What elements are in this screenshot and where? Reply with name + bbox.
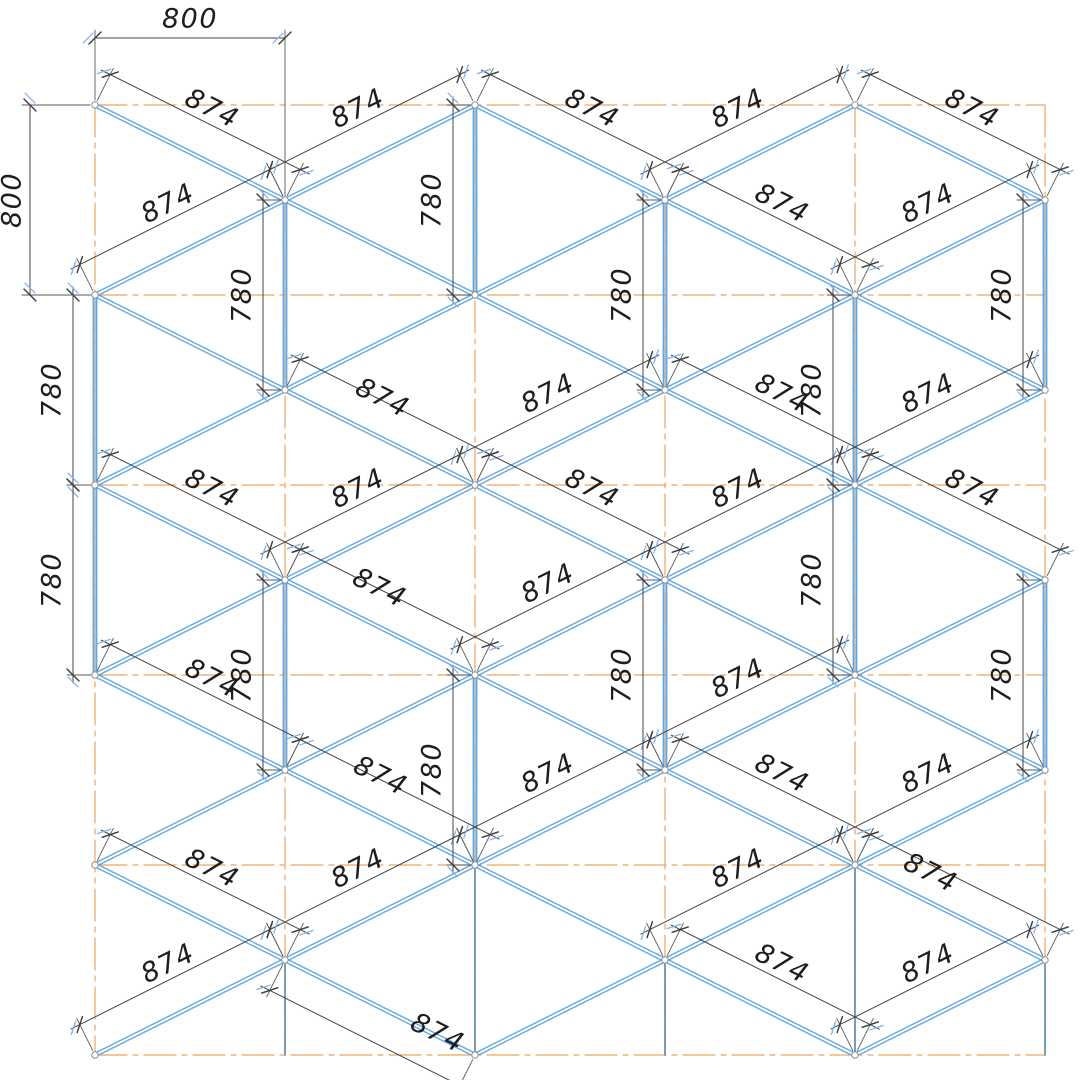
- dimension-label: 874: [706, 462, 770, 515]
- node-marker: [472, 862, 478, 868]
- dimension-label: 874: [750, 747, 814, 800]
- blue-tick: [680, 551, 693, 555]
- blue-tick: [490, 646, 503, 650]
- blue-tick: [287, 544, 300, 548]
- dimension-label: 780: [227, 647, 258, 703]
- dimension-label: 874: [706, 652, 770, 705]
- dimension-tick: [267, 542, 272, 558]
- dimension-label: 780: [417, 742, 448, 798]
- blue-tick: [464, 445, 468, 458]
- extension-line: [1047, 163, 1063, 195]
- node-marker: [92, 102, 98, 108]
- node-marker: [282, 957, 288, 963]
- dimension-label: 874: [560, 462, 624, 515]
- dimension-tick: [862, 452, 878, 457]
- dimension-label: 780: [227, 267, 258, 323]
- dimension-label: 874: [560, 82, 624, 135]
- dimension-tick: [1027, 352, 1032, 368]
- truss-chord: [284, 293, 474, 388]
- node-marker: [472, 1052, 478, 1058]
- dimension-label: 874: [326, 842, 390, 895]
- dimension-tick: [1027, 922, 1032, 938]
- node-marker: [472, 672, 478, 678]
- dimension-label: 874: [896, 937, 960, 990]
- dimension-label: 874: [750, 177, 814, 230]
- node-marker: [662, 387, 668, 393]
- truss-chord: [94, 958, 284, 1053]
- node-marker: [852, 1052, 858, 1058]
- dimension-label: 780: [607, 647, 638, 703]
- blue-tick: [857, 69, 870, 73]
- truss-chord: [474, 958, 664, 1053]
- truss-chord: [854, 958, 1044, 1053]
- dimension-tick: [837, 827, 842, 843]
- dimension-tick: [1052, 927, 1068, 932]
- truss-chord: [854, 768, 1044, 863]
- blue-tick: [870, 266, 883, 270]
- truss-chord: [286, 297, 476, 392]
- drawing-page: 8748748748748748748748748748748748748748…: [0, 0, 1080, 1080]
- node-marker: [662, 957, 668, 963]
- truss-chord: [96, 483, 286, 578]
- blue-tick: [97, 69, 110, 73]
- blue-tick: [831, 1021, 835, 1034]
- dimension-label: 874: [896, 177, 960, 230]
- blue-tick: [97, 449, 110, 453]
- dimension-tick: [102, 452, 118, 457]
- dimension-tick: [292, 737, 308, 742]
- dimension-tick: [837, 67, 842, 83]
- blue-tick: [654, 730, 658, 743]
- dimension-label: 874: [896, 367, 960, 420]
- blue-tick: [667, 354, 680, 358]
- blue-tick: [1060, 551, 1073, 555]
- dimension-tick: [837, 447, 842, 463]
- truss-chord: [856, 483, 1046, 578]
- dimension-label: 874: [326, 82, 390, 135]
- dimension-label: 780: [797, 362, 828, 418]
- blue-tick: [490, 836, 503, 840]
- extension-line: [457, 1059, 473, 1080]
- blue-tick: [870, 1026, 883, 1030]
- truss-chord: [94, 487, 284, 582]
- dimension-tick: [647, 162, 652, 178]
- dimension-tick: [837, 1017, 842, 1033]
- blue-tick: [857, 829, 870, 833]
- dimension-label: 874: [180, 82, 244, 135]
- truss-chord: [474, 768, 664, 863]
- dimension-label: 874: [347, 562, 411, 615]
- dimension-tick: [1027, 732, 1032, 748]
- truss-chord: [666, 198, 856, 293]
- dimension-label: 874: [940, 82, 1004, 135]
- blue-tick: [257, 985, 270, 989]
- truss-chord: [286, 867, 476, 962]
- blue-tick: [667, 164, 680, 168]
- blue-tick: [844, 825, 848, 838]
- node-marker: [472, 292, 478, 298]
- truss-chord: [666, 958, 856, 1053]
- dimension-tick: [292, 547, 308, 552]
- dimension-label: 874: [516, 367, 580, 420]
- node-marker: [282, 197, 288, 203]
- dimension-label: 780: [987, 647, 1018, 703]
- dimension-tick: [267, 162, 272, 178]
- dimension-tick: [482, 642, 498, 647]
- dimension-tick: [862, 262, 878, 267]
- dimension-tick: [837, 257, 842, 273]
- truss-chord: [856, 772, 1046, 867]
- dimension-tick: [647, 352, 652, 368]
- dimension-tick: [1027, 162, 1032, 178]
- blue-tick: [71, 261, 75, 274]
- node-marker: [92, 292, 98, 298]
- blue-tick: [857, 449, 870, 453]
- node-marker: [472, 482, 478, 488]
- node-marker: [92, 672, 98, 678]
- truss-chord: [666, 768, 856, 863]
- dimension-label: 874: [405, 1007, 469, 1060]
- truss-chord: [284, 483, 474, 578]
- dimension-label: 874: [350, 372, 414, 425]
- dimension-label: 800: [162, 4, 218, 35]
- blue-tick: [477, 69, 490, 73]
- blue-tick: [274, 160, 278, 173]
- extension-line: [1047, 923, 1063, 955]
- dimension-label: 874: [516, 747, 580, 800]
- node-marker: [852, 672, 858, 678]
- dimension-tick: [482, 452, 498, 457]
- node-marker: [662, 577, 668, 583]
- blue-tick: [1034, 160, 1038, 173]
- node-marker: [662, 767, 668, 773]
- node-marker: [1042, 767, 1048, 773]
- dimension-tick: [672, 927, 688, 932]
- dimension-label: 780: [607, 267, 638, 323]
- blue-tick: [300, 931, 313, 935]
- dimension-tick: [672, 737, 688, 742]
- dimension-label: 780: [797, 552, 828, 608]
- node-marker: [662, 197, 668, 203]
- dimension-tick: [457, 637, 462, 653]
- dimension-label: 874: [326, 462, 390, 515]
- dimension-label: 874: [896, 747, 960, 800]
- dimension-tick: [1052, 167, 1068, 172]
- dimension-label: 874: [348, 750, 412, 803]
- node-marker: [282, 387, 288, 393]
- dimension-tick: [457, 827, 462, 843]
- dimension-tick: [292, 167, 308, 172]
- dimension-label: 874: [750, 937, 814, 990]
- blue-tick: [71, 1021, 75, 1034]
- blue-tick: [451, 641, 455, 654]
- dimension-tick: [292, 357, 308, 362]
- truss-chord: [856, 103, 1046, 198]
- truss-chord: [664, 202, 854, 297]
- blue-tick: [287, 734, 300, 738]
- isometric-truss-drawing: 8748748748748748748748748748748748748748…: [0, 0, 1080, 1080]
- dimension-tick: [672, 167, 688, 172]
- node-marker: [1042, 197, 1048, 203]
- extension-line: [77, 1018, 93, 1050]
- truss-chord: [476, 962, 666, 1057]
- dimension-tick: [457, 447, 462, 463]
- node-marker: [852, 482, 858, 488]
- dimension-tick: [647, 922, 652, 938]
- blue-tick: [287, 354, 300, 358]
- node-marker: [1042, 387, 1048, 393]
- blue-tick: [831, 261, 835, 274]
- extension-line: [1047, 543, 1063, 575]
- truss-chord: [856, 962, 1046, 1057]
- truss-chord: [854, 487, 1044, 582]
- truss-chord: [474, 107, 664, 202]
- truss-chord: [476, 483, 666, 578]
- blue-tick: [464, 825, 468, 838]
- dimension-tick: [457, 67, 462, 83]
- truss-chord: [96, 863, 286, 958]
- node-marker: [92, 862, 98, 868]
- blue-tick: [1034, 350, 1038, 363]
- blue-tick: [300, 171, 313, 175]
- blue-tick: [844, 445, 848, 458]
- blue-tick: [477, 449, 490, 453]
- node-marker: [1042, 957, 1048, 963]
- dimension-tick: [102, 832, 118, 837]
- blue-tick: [97, 639, 110, 643]
- blue-tick: [464, 65, 468, 78]
- node-marker: [1042, 577, 1048, 583]
- blue-tick: [844, 635, 848, 648]
- dimension-label: 874: [706, 842, 770, 895]
- dimension-tick: [102, 642, 118, 647]
- truss-chord: [664, 962, 854, 1057]
- dimension-tick: [647, 732, 652, 748]
- node-marker: [282, 767, 288, 773]
- dimension-label: 874: [180, 842, 244, 895]
- dimension-label: 874: [940, 462, 1004, 515]
- blue-tick: [274, 920, 278, 933]
- dimension-tick: [292, 927, 308, 932]
- dimension-tick: [672, 357, 688, 362]
- blue-tick: [1060, 171, 1073, 175]
- node-marker: [282, 577, 288, 583]
- dimension-tick: [262, 988, 278, 993]
- node-marker: [472, 102, 478, 108]
- dimension-tick: [862, 72, 878, 77]
- dimension-label: 874: [136, 177, 200, 230]
- dimension-tick: [482, 72, 498, 77]
- truss-chord: [474, 867, 664, 962]
- blue-tick: [667, 734, 680, 738]
- extension-line: [457, 68, 473, 100]
- dimension-label: 874: [180, 462, 244, 515]
- dimension-label: 780: [987, 267, 1018, 323]
- dimension-tick: [267, 922, 272, 938]
- truss-chord: [286, 487, 476, 582]
- dimension-tick: [482, 832, 498, 837]
- node-marker: [92, 1052, 98, 1058]
- dimension-tick: [77, 1017, 82, 1033]
- dimension-label: 780: [37, 362, 68, 418]
- truss-chord: [284, 863, 474, 958]
- dimension-tick: [837, 637, 842, 653]
- truss-chord: [476, 772, 666, 867]
- node-marker: [92, 482, 98, 488]
- node-marker: [852, 102, 858, 108]
- extension-line: [837, 68, 853, 100]
- blue-tick: [667, 924, 680, 928]
- dimension-tick: [672, 547, 688, 552]
- blue-tick: [654, 540, 658, 553]
- dimension-tick: [1052, 547, 1068, 552]
- extension-line: [77, 258, 93, 290]
- blue-tick: [641, 926, 645, 939]
- truss-chord: [96, 103, 286, 198]
- dimension-label: 780: [417, 172, 448, 228]
- dimension-tick: [862, 832, 878, 837]
- truss-chord: [96, 962, 286, 1057]
- blue-tick: [641, 166, 645, 179]
- node-marker: [852, 862, 858, 868]
- blue-tick: [261, 546, 265, 559]
- dimension-tick: [862, 1022, 878, 1027]
- blue-tick: [654, 350, 658, 363]
- truss-chord: [476, 103, 666, 198]
- blue-tick: [1034, 920, 1038, 933]
- truss-chord: [476, 863, 666, 958]
- dimension-label: 874: [516, 557, 580, 610]
- dimension-tick: [102, 72, 118, 77]
- dimension-label: 874: [136, 937, 200, 990]
- dimension-label: 874: [706, 82, 770, 135]
- dimension-label: 780: [37, 552, 68, 608]
- blue-tick: [844, 65, 848, 78]
- blue-tick: [1060, 931, 1073, 935]
- node-marker: [852, 292, 858, 298]
- dimension-label: 874: [898, 847, 962, 900]
- blue-tick: [1034, 730, 1038, 743]
- dimension-label: 800: [0, 172, 28, 228]
- dimension-tick: [77, 257, 82, 273]
- blue-tick: [97, 829, 110, 833]
- dimension-tick: [647, 542, 652, 558]
